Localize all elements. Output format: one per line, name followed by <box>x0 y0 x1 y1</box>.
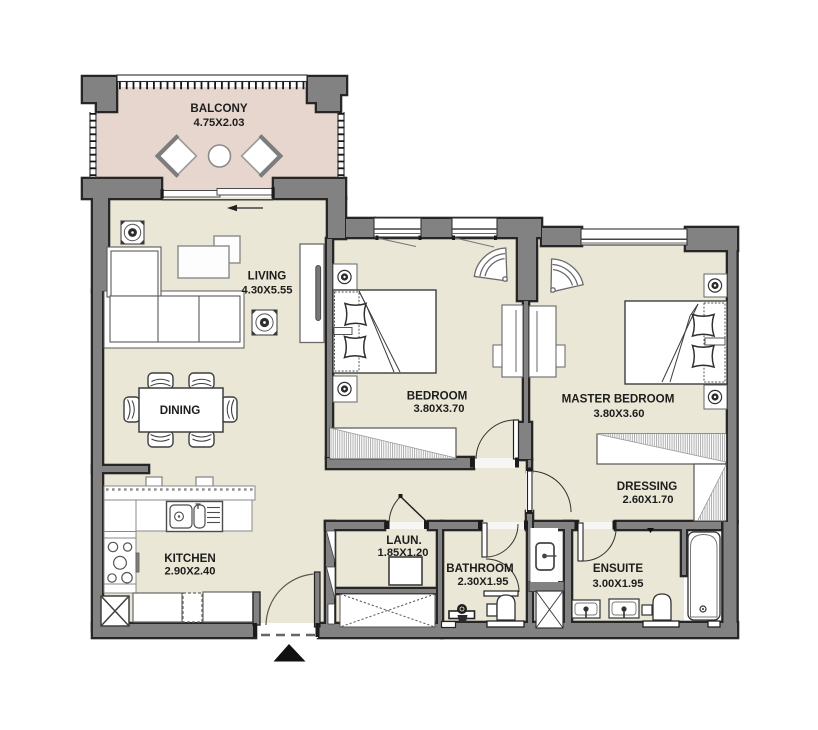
svg-text:3.00X1.95: 3.00X1.95 <box>592 578 643 590</box>
svg-text:BEDROOM: BEDROOM <box>407 390 468 403</box>
svg-text:DINING: DINING <box>160 404 201 417</box>
svg-text:2.30X1.95: 2.30X1.95 <box>457 576 508 588</box>
svg-text:MASTER BEDROOM: MASTER BEDROOM <box>562 393 675 406</box>
svg-text:DRESSING: DRESSING <box>617 480 678 493</box>
svg-text:KITCHEN: KITCHEN <box>164 552 216 565</box>
svg-text:LAUN.: LAUN. <box>386 534 421 547</box>
svg-text:2.60X1.70: 2.60X1.70 <box>622 494 673 506</box>
svg-text:3.80X3.60: 3.80X3.60 <box>593 408 644 420</box>
svg-text:1.85X1.20: 1.85X1.20 <box>377 547 428 559</box>
svg-text:BATHROOM: BATHROOM <box>446 562 513 575</box>
svg-text:ENSUITE: ENSUITE <box>593 562 644 575</box>
svg-text:2.90X2.40: 2.90X2.40 <box>164 566 215 578</box>
svg-text:LIVING: LIVING <box>248 270 287 283</box>
svg-text:BALCONY: BALCONY <box>190 102 248 115</box>
svg-text:4.75X2.03: 4.75X2.03 <box>193 117 244 129</box>
svg-text:4.30X5.55: 4.30X5.55 <box>241 285 292 297</box>
svg-text:3.80X3.70: 3.80X3.70 <box>413 403 464 415</box>
